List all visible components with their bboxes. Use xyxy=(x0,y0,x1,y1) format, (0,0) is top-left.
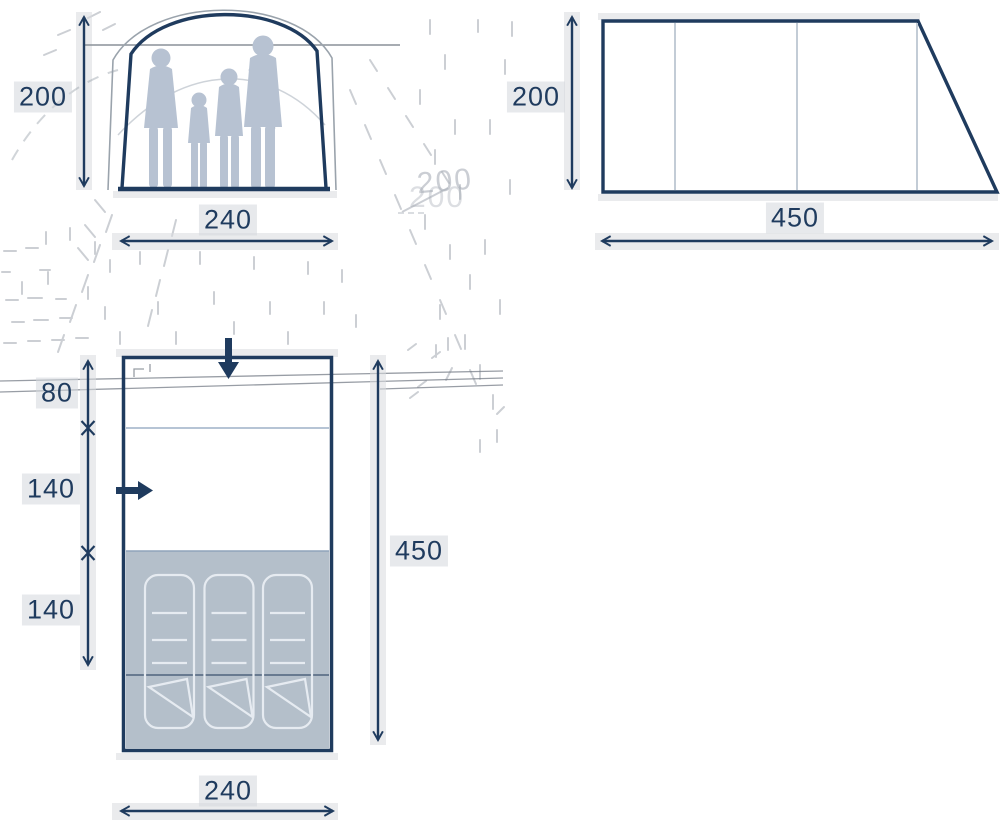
ghost-dash xyxy=(370,60,377,71)
ghost-dash xyxy=(164,250,168,266)
ghost-dash xyxy=(418,381,426,387)
ghost-dash xyxy=(406,116,413,127)
ghost-dash xyxy=(95,200,105,212)
ground-shadow xyxy=(598,194,998,201)
side-length-label: 450 xyxy=(766,203,824,234)
ghost-dash xyxy=(148,310,152,326)
ghost-dash xyxy=(106,215,112,232)
plan-bedroom-label: 140 xyxy=(22,595,80,626)
front-width-label: 240 xyxy=(199,205,257,236)
ghost-dash xyxy=(446,368,452,380)
ghost-dash xyxy=(410,392,418,398)
side-profile-outline xyxy=(603,21,997,192)
ghost-dash xyxy=(425,265,431,279)
mother-silhouette xyxy=(144,49,178,189)
side-door-arrow xyxy=(116,481,153,500)
side-panel-dividers xyxy=(675,23,917,190)
family-silhouette xyxy=(144,36,282,190)
plan-living-label: 140 xyxy=(22,474,80,505)
ghost-dash xyxy=(455,335,461,349)
diagram-graphics xyxy=(0,0,1000,822)
child-silhouette xyxy=(188,93,210,190)
ghost-dash xyxy=(78,248,88,260)
ground-shadow xyxy=(113,191,337,198)
ghost-dash xyxy=(424,144,431,155)
ghost-dash xyxy=(58,335,64,352)
bottom-shadow xyxy=(116,753,338,760)
plan-entrance-label: 80 xyxy=(36,378,78,409)
ghost-dash xyxy=(410,230,416,244)
bedroom-area xyxy=(126,551,329,749)
father-silhouette xyxy=(244,36,282,190)
ghost-dash xyxy=(408,344,416,350)
floor-plan xyxy=(80,338,386,820)
ghost-dash xyxy=(350,90,356,104)
ghost-dash xyxy=(70,305,76,322)
ghost-dash xyxy=(103,24,115,30)
ghost-dash xyxy=(365,125,371,139)
ghost-dash xyxy=(58,30,70,35)
plan-width-label: 240 xyxy=(199,776,257,807)
boy-silhouette xyxy=(215,69,243,190)
ghost-dash xyxy=(388,88,395,99)
ghost-dash xyxy=(156,280,160,296)
front-height-label: 200 xyxy=(14,82,72,113)
tent-dimensions-diagram: 200 240 200 450 80 140 140 450 240 200 2… xyxy=(0,0,1000,822)
ghost-dash xyxy=(395,195,401,209)
top-shadow xyxy=(598,13,920,20)
ghost-dash xyxy=(44,50,56,55)
ghost-dash xyxy=(380,160,386,174)
ghost-dimension-text-echo: 200 xyxy=(409,183,465,213)
ghost-dash xyxy=(497,407,504,414)
side-height-label: 200 xyxy=(507,82,565,113)
ghost-dash xyxy=(85,225,95,237)
plan-length-label: 450 xyxy=(390,536,448,567)
